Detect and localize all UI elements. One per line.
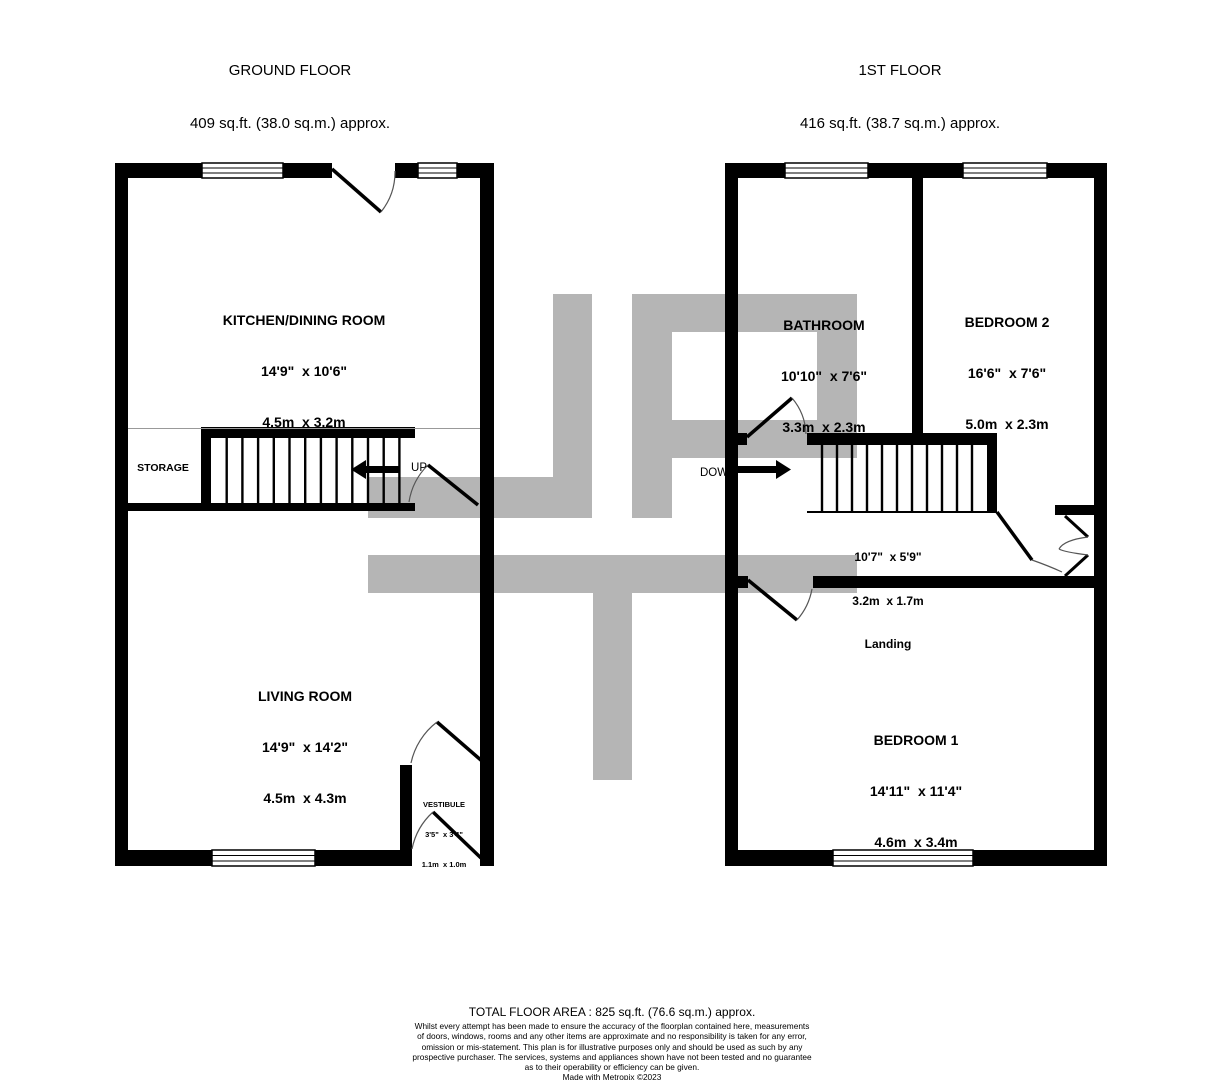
- ground-floor-area: 409 sq.ft. (38.0 sq.m.) approx.: [190, 115, 390, 133]
- kitchen-door-leaf: [332, 169, 381, 212]
- bedroom1-door-arc: [797, 589, 812, 620]
- kitchen-door-arc: [381, 171, 395, 212]
- cupboard-door-leaf-top: [1065, 516, 1088, 537]
- bedroom2-label: BEDROOM 2 16'6" x 7'6" 5.0m x 2.3m: [965, 280, 1050, 467]
- floorplan-page: GROUND FLOOR 409 sq.ft. (38.0 sq.m.) app…: [0, 0, 1224, 1080]
- ground-floor-header: GROUND FLOOR 409 sq.ft. (38.0 sq.m.) app…: [190, 27, 390, 167]
- up-label: UP: [411, 462, 427, 475]
- cupboard-door-leaf-bottom: [1065, 555, 1088, 576]
- window: [418, 163, 457, 178]
- ground-floor-title: GROUND FLOOR: [190, 62, 390, 80]
- bathroom-label: BATHROOM 10'10" x 7'6" 3.3m x 2.3m: [781, 283, 867, 470]
- vestibule-label: VESTIBULE 3'5" x 3'4" 1.1m x 1.0m: [422, 780, 467, 890]
- floorplan-drawing: [0, 0, 1224, 1080]
- total-floor-area: TOTAL FLOOR AREA : 825 sq.ft. (76.6 sq.m…: [469, 1005, 756, 1019]
- first-floor-area: 416 sq.ft. (38.7 sq.m.) approx.: [800, 115, 1000, 133]
- first-floor-header: 1ST FLOOR 416 sq.ft. (38.7 sq.m.) approx…: [800, 27, 1000, 167]
- gf-stairs-side-wall: [201, 427, 211, 503]
- vestibule-door-arc: [411, 722, 437, 763]
- storage-label: STORAGE: [137, 462, 189, 474]
- landing-door-leaf: [997, 512, 1032, 560]
- disclaimer-text: Whilst every attempt has been made to en…: [412, 1021, 811, 1072]
- first-floor-title: 1ST FLOOR: [800, 62, 1000, 80]
- landing-door-arc: [1032, 560, 1062, 572]
- landing-label: 10'7" x 5'9" 3.2m x 1.7m Landing: [852, 521, 923, 681]
- vestibule-partition-wall: [400, 765, 412, 850]
- bedroom1-label: BEDROOM 1 14'11" x 11'4" 4.6m x 3.4m: [870, 698, 962, 885]
- cupboard-door-arc-top: [1059, 537, 1088, 549]
- window: [212, 850, 315, 866]
- cupboard-door-arc-bottom: [1059, 549, 1088, 555]
- credit-text: Made with Metropix ©2023: [563, 1072, 662, 1080]
- bathroom-bedroom2-divider: [912, 178, 923, 445]
- living-room-label: LIVING ROOM 14'9" x 14'2" 4.5m x 4.3m: [258, 654, 352, 841]
- cupboard-stub-wall: [1055, 505, 1094, 515]
- kitchen-label: KITCHEN/DINING ROOM 14'9" x 10'6" 4.5m x…: [223, 278, 386, 465]
